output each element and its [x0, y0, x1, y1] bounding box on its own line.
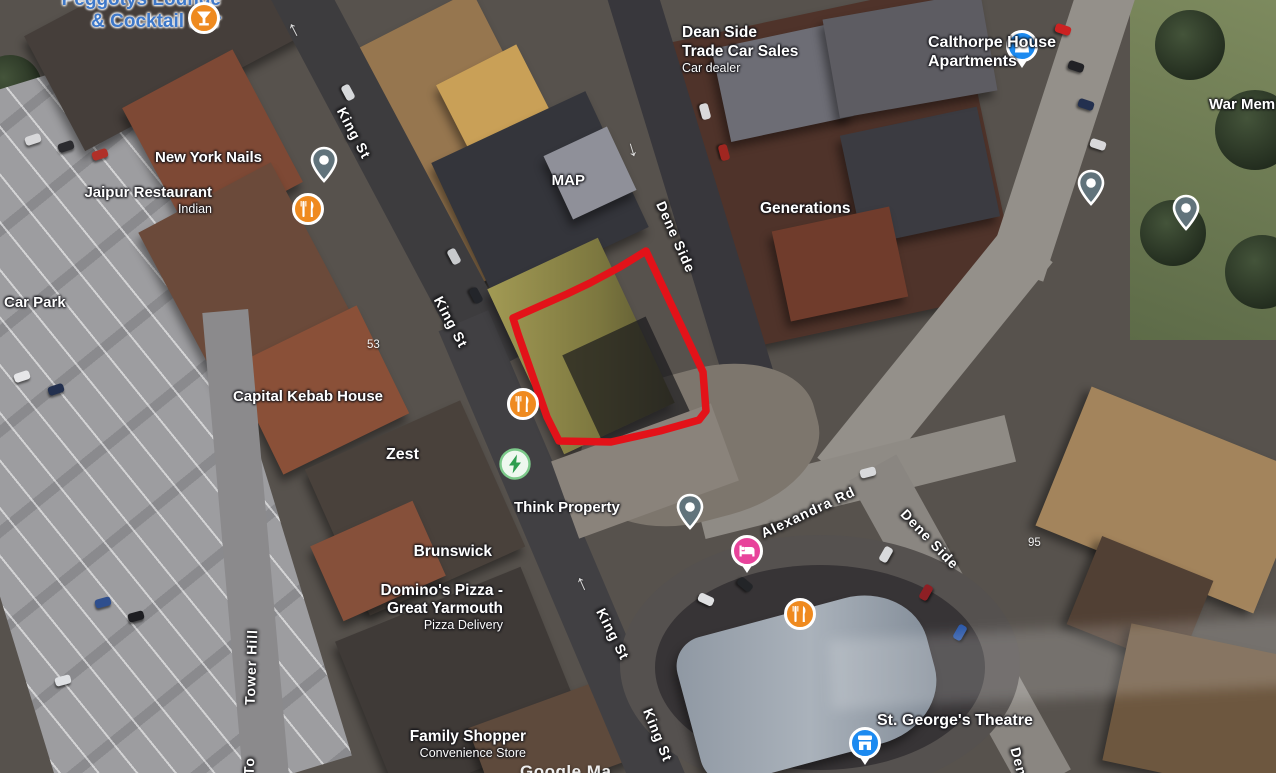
poi-jaipur-restaurant[interactable]: Jaipur Restaurant Indian — [84, 184, 212, 216]
poi-family-shopper[interactable]: Family Shopper Convenience Store — [410, 728, 526, 760]
satellite-imagery — [0, 0, 1276, 773]
satellite-map-view: ↑ ↑ ↑ King St King St King St King St De… — [0, 0, 1276, 773]
pin-icon[interactable] — [309, 146, 339, 184]
google-watermark: Google Ma — [520, 762, 611, 773]
poi-new-york-nails[interactable]: New York Nails — [155, 149, 262, 167]
poi-car-park[interactable]: Car Park — [4, 294, 66, 312]
restaurant-icon[interactable] — [289, 190, 327, 228]
store-icon[interactable] — [846, 724, 884, 768]
car — [1089, 138, 1107, 152]
poi-calthorpe-house-apartments[interactable]: Calthorpe House Apartments — [928, 33, 1056, 71]
restaurant-icon[interactable] — [781, 595, 819, 633]
building-number: 95 — [1028, 537, 1041, 549]
pin-icon[interactable] — [675, 493, 705, 531]
poi-dean-side-trade-car-sales[interactable]: Dean Side Trade Car Sales Car dealer — [682, 23, 798, 75]
poi-capital-kebab-house[interactable]: Capital Kebab House — [233, 388, 383, 406]
restaurant-icon[interactable] — [504, 385, 542, 423]
street-label-tower-hill-partial: To — [241, 757, 258, 773]
street-label-tower-hill: Tower Hill — [242, 629, 261, 705]
pin-icon[interactable] — [1076, 169, 1106, 207]
pin-icon[interactable] — [1171, 194, 1201, 232]
cocktail-icon[interactable] — [186, 0, 222, 36]
poi-think-property[interactable]: Think Property — [514, 499, 620, 517]
poi-war-memorial[interactable]: War Mem — [1209, 96, 1275, 114]
poi-zest[interactable]: Zest — [386, 446, 419, 464]
building-number: 53 — [367, 339, 380, 351]
poi-st-georges-theatre[interactable]: St. George's Theatre — [877, 712, 1033, 730]
poi-map[interactable]: MAP — [552, 172, 585, 190]
bed-icon[interactable] — [728, 532, 766, 576]
tree — [1155, 10, 1225, 80]
ev-bolt-icon[interactable] — [497, 446, 533, 482]
poi-generations[interactable]: Generations — [760, 200, 850, 218]
poi-brunswick[interactable]: Brunswick — [414, 543, 492, 561]
poi-dominos-pizza[interactable]: Domino's Pizza - Great Yarmouth Pizza De… — [380, 582, 503, 632]
